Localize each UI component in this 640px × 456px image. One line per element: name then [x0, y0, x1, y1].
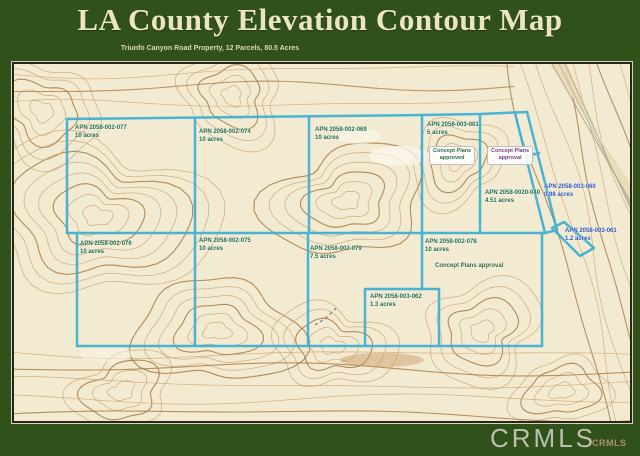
parcel-acreage: 1.2 acres — [565, 235, 617, 243]
annotation-text: Concept Plans — [433, 148, 471, 155]
annotation-concept-plans-approval: Concept Plans approval — [487, 146, 533, 165]
parcel-acreage: 4.51 acres — [485, 197, 540, 205]
annotation-concept-plans-approved: Concept Plans approved — [429, 146, 475, 165]
parcel-apn: APN 2058-002-074 — [199, 128, 251, 136]
listing-image: LA County Elevation Contour Map Triunfo … — [0, 0, 640, 456]
parcel-acreage: 10 acres — [75, 132, 127, 140]
parcel-apn: APN 2058-003-061 — [565, 227, 617, 235]
parcel-apn: APN 2058-0020-040 — [485, 189, 540, 197]
page-title: LA County Elevation Contour Map — [0, 2, 640, 38]
annotation-text: Concept Plans — [491, 148, 529, 155]
crmls-watermark: CRMLS — [490, 423, 596, 454]
parcel-label-2058-003-061: APN 2058-003-061 1.2 acres — [565, 227, 617, 243]
parcel-apn: APN 2058-003-062 — [370, 293, 422, 301]
parcel-label-2058-002-078: APN 2058-002-078 10 acres — [425, 238, 477, 254]
crmls-logo: CRMLS — [592, 438, 627, 448]
parcel-label-2058-002-076: APN 2058-002-076 10 acres — [80, 240, 132, 256]
parcel-acreage: 10 acres — [425, 246, 477, 254]
parcel-apn: APN 2058-002-075 — [199, 237, 251, 245]
parcel-acreage: 5 acres — [427, 129, 479, 137]
parcel-apn: APN 2058-003-001 — [427, 121, 479, 129]
annotation-text: approved — [433, 155, 471, 162]
parcel-label-2058-003-062: APN 2058-003-062 1.3 acres — [370, 293, 422, 309]
contour-map: APN 2058-002-077 10 acres APN 2058-002-0… — [12, 62, 632, 423]
parcel-apn: APN 2058-002-077 — [75, 124, 127, 132]
parcel-acreage: 7.5 acres — [310, 253, 362, 261]
annotation-concept-plans-approval-bottom: Concept Plans approval — [435, 263, 503, 269]
parcel-acreage: 10 acres — [80, 248, 132, 256]
parcel-acreage: 0.98 acres — [544, 191, 596, 199]
parcel-acreage: 10 acres — [315, 134, 367, 142]
parcel-label-2058-003-060: APN 2058-003-060 0.98 acres — [544, 183, 596, 199]
parcel-label-2058-002-077: APN 2058-002-077 10 acres — [75, 124, 127, 140]
page-subtitle: Triunfo Canyon Road Property, 12 Parcels… — [90, 45, 330, 52]
parcel-acreage: 10 acres — [199, 136, 251, 144]
parcel-acreage: 10 acres — [199, 245, 251, 253]
parcel-label-2058-002-074: APN 2058-002-074 10 acres — [199, 128, 251, 144]
parcel-label-2058-002-069: APN 2058-002-069 10 acres — [315, 126, 367, 142]
parcel-label-2058-003-001: APN 2058-003-001 5 acres — [427, 121, 479, 137]
parcel-apn: APN 2058-002-076 — [80, 240, 132, 248]
parcel-label-2058-002-075: APN 2058-002-075 10 acres — [199, 237, 251, 253]
parcel-acreage: 1.3 acres — [370, 301, 422, 309]
parcel-apn: APN 2058-002-079 — [310, 245, 362, 253]
parcel-label-2058-0020-040: APN 2058-0020-040 4.51 acres — [485, 189, 540, 205]
parcel-apn: APN 2058-002-078 — [425, 238, 477, 246]
parcel-label-2058-002-079: APN 2058-002-079 7.5 acres — [310, 245, 362, 261]
parcel-apn: APN 2058-003-060 — [544, 183, 596, 191]
annotation-text: approval — [491, 155, 529, 162]
parcel-apn: APN 2058-002-069 — [315, 126, 367, 134]
